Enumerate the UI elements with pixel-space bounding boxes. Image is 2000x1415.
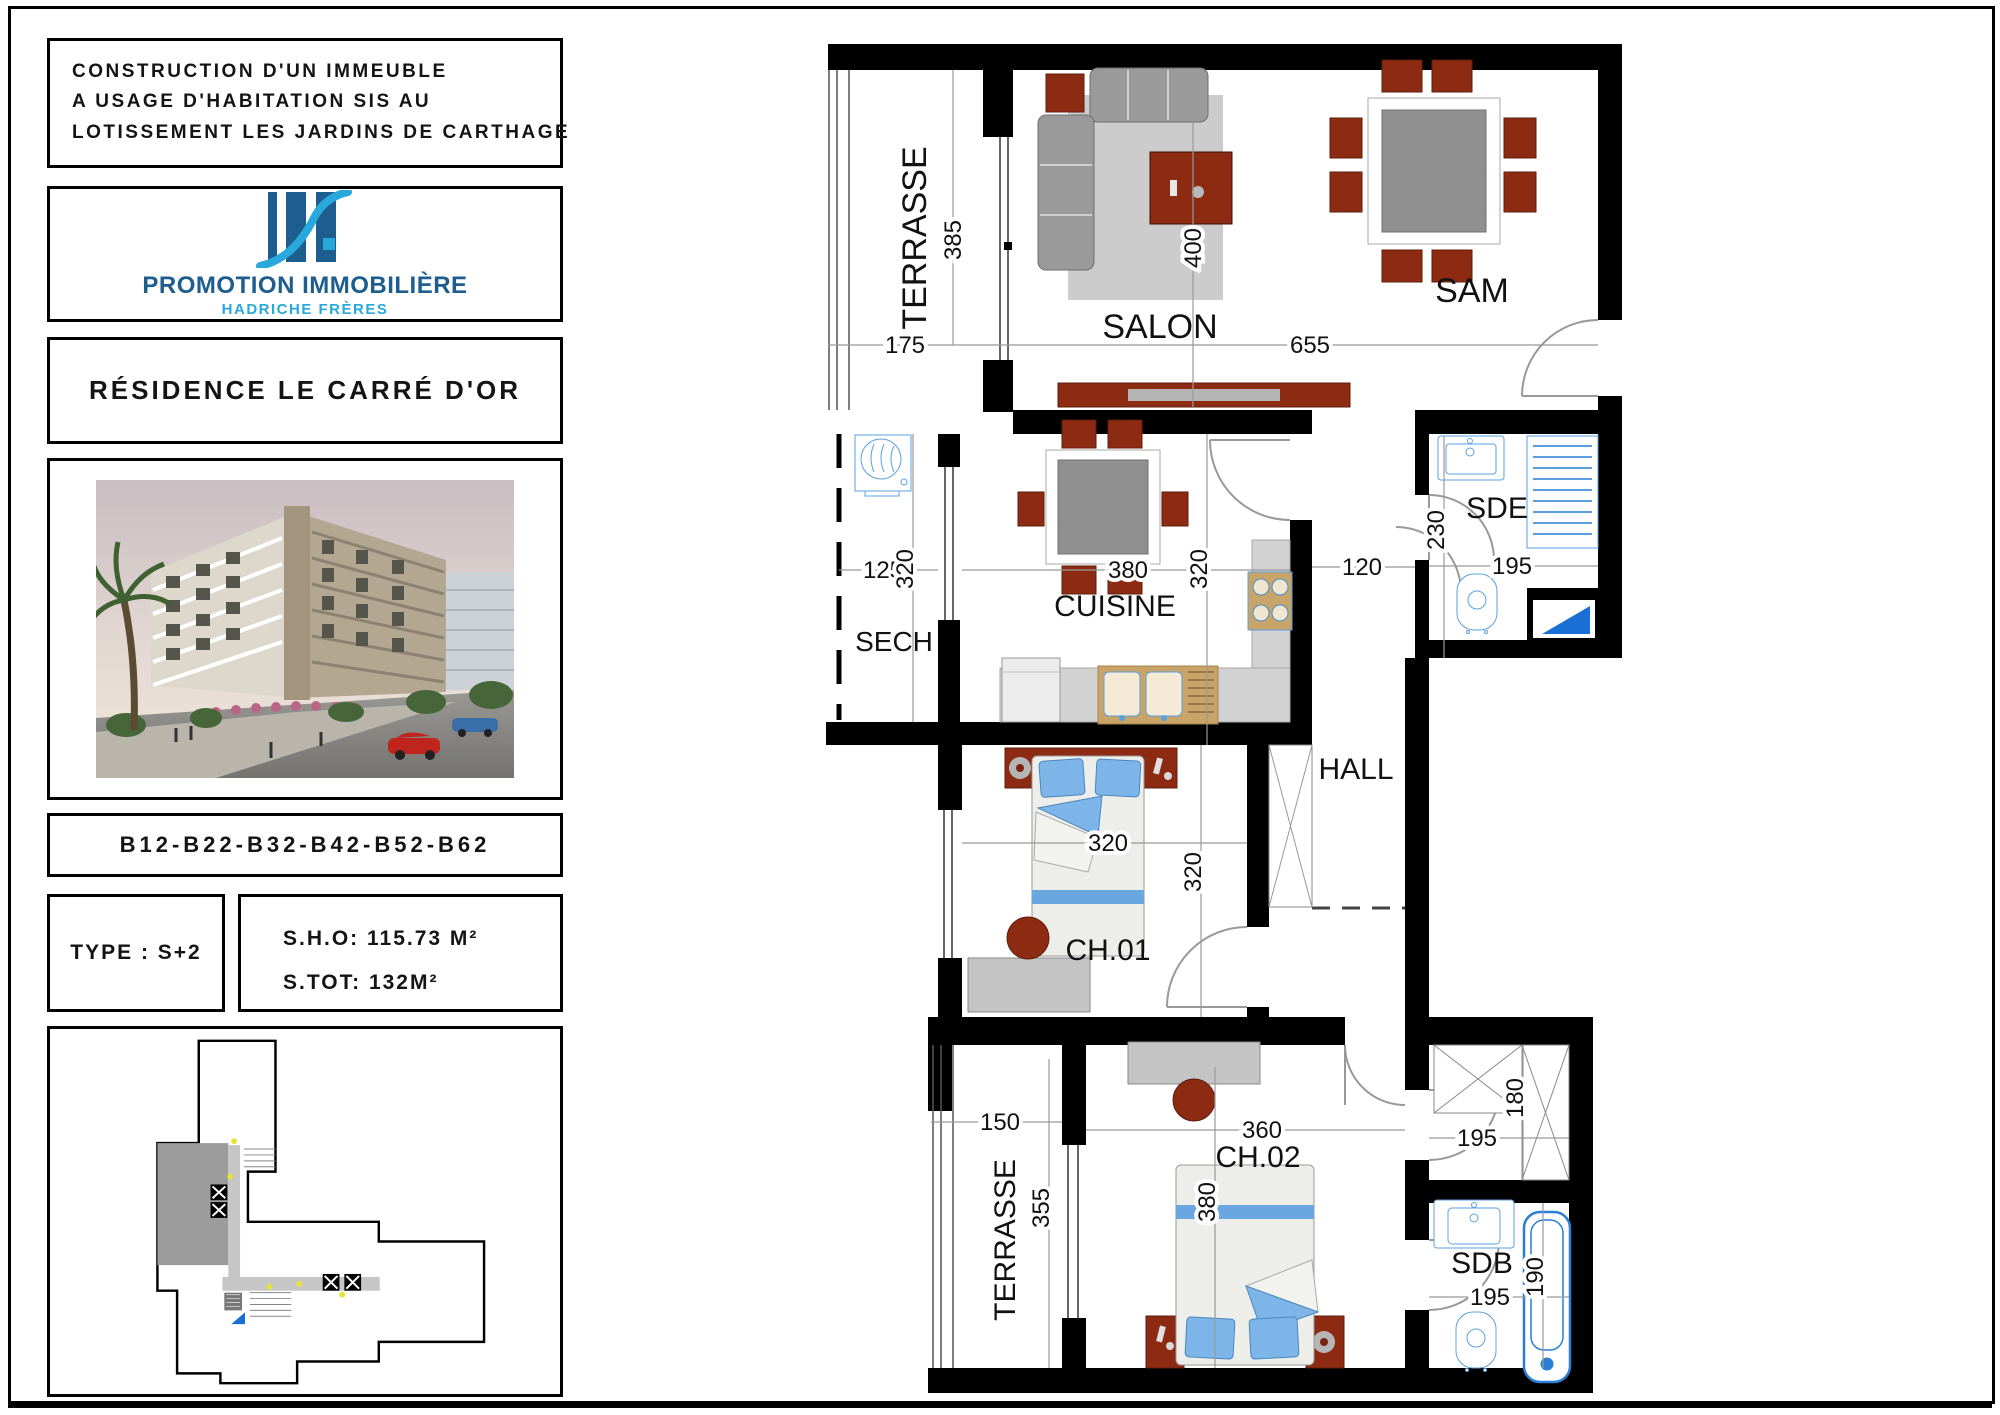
ch02-bed bbox=[1146, 1165, 1344, 1368]
ch02-desk bbox=[1128, 1042, 1260, 1121]
dim-terrace-b-h: 355 bbox=[1028, 1188, 1055, 1228]
stove bbox=[1248, 572, 1292, 630]
dim-dressing-h: 180 bbox=[1502, 1078, 1529, 1118]
sech-washing-machine bbox=[855, 435, 911, 496]
dim-salon-sam-w: 655 bbox=[1290, 332, 1330, 359]
dim-ch01-h: 320 bbox=[1180, 852, 1207, 892]
room-label-ch02: CH.02 bbox=[1215, 1141, 1300, 1174]
terrace-railings bbox=[829, 70, 953, 1368]
dim-terrace-top-h: 385 bbox=[940, 220, 967, 260]
floor-plan: 385 175 655 400 125 320 380 320 120 230 … bbox=[0, 0, 2000, 1415]
dim-dressing-w: 195 bbox=[1457, 1125, 1497, 1152]
cuisine-dining-set bbox=[1018, 420, 1188, 594]
room-label-sam: SAM bbox=[1435, 272, 1509, 310]
room-label-ch01: CH.01 bbox=[1065, 934, 1150, 967]
dim-terrace-b-w: 150 bbox=[980, 1109, 1020, 1136]
room-label-sech: SECH bbox=[855, 626, 933, 657]
room-label-hall: HALL bbox=[1318, 753, 1393, 786]
dim-sdb-w: 195 bbox=[1470, 1284, 1510, 1311]
room-label-terrasse-bottom: TERRASSE bbox=[989, 1159, 1022, 1321]
dim-sdb-h: 190 bbox=[1522, 1257, 1549, 1297]
room-label-salon: SALON bbox=[1102, 308, 1217, 346]
dim-sech-h: 320 bbox=[892, 549, 919, 589]
dim-salon-d: 400 bbox=[1180, 228, 1207, 268]
hall-closet bbox=[1269, 745, 1312, 907]
dim-entry-w: 120 bbox=[1342, 554, 1382, 581]
dim-terrace-top-w: 175 bbox=[885, 332, 925, 359]
dim-cuisine-h: 320 bbox=[1186, 549, 1213, 589]
sde-corner-niche bbox=[1533, 600, 1595, 638]
room-label-terrasse-top: TERRASSE bbox=[896, 146, 934, 329]
dim-ch02-h: 380 bbox=[1194, 1182, 1221, 1222]
room-label-sde: SDE bbox=[1466, 492, 1528, 525]
dim-ch01-w: 320 bbox=[1088, 830, 1128, 857]
kitchen-sink bbox=[1098, 666, 1218, 724]
room-label-sdb: SDB bbox=[1451, 1247, 1513, 1280]
sam-dining-set bbox=[1330, 60, 1536, 282]
dim-ch02-w: 360 bbox=[1242, 1117, 1282, 1144]
room-label-cuisine: CUISINE bbox=[1054, 590, 1176, 623]
dim-cuisine-w: 380 bbox=[1108, 557, 1148, 584]
dim-sde-w: 195 bbox=[1492, 553, 1532, 580]
dim-sde-h: 230 bbox=[1423, 510, 1450, 550]
